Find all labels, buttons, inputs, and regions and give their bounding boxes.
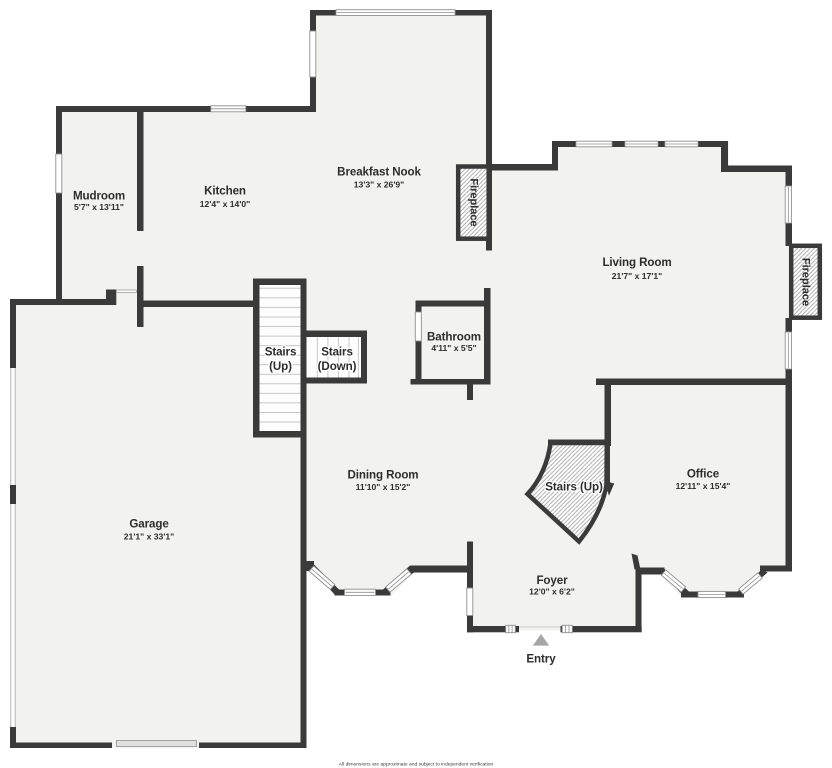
svg-text:12'4" x 14'0": 12'4" x 14'0" (200, 199, 250, 209)
svg-text:Stairs (Up): Stairs (Up) (545, 481, 603, 494)
svg-text:12'11" x 15'4": 12'11" x 15'4" (676, 481, 731, 491)
svg-text:All dimensions are approximate: All dimensions are approximate and subje… (339, 762, 494, 768)
svg-text:Dining Room: Dining Room (347, 469, 418, 482)
svg-text:21'1" x 33'1": 21'1" x 33'1" (124, 532, 174, 542)
svg-text:Entry: Entry (526, 653, 556, 666)
svg-text:4'11" x 5'5": 4'11" x 5'5" (431, 343, 476, 353)
svg-text:Bathroom: Bathroom (427, 331, 481, 344)
svg-text:Fireplace: Fireplace (468, 178, 480, 226)
svg-text:13'3" x 26'9": 13'3" x 26'9" (354, 180, 404, 190)
svg-text:Living Room: Living Room (602, 256, 671, 269)
svg-text:11'10" x 15'2": 11'10" x 15'2" (356, 482, 411, 492)
svg-text:Mudroom: Mudroom (73, 190, 125, 203)
svg-text:Garage: Garage (129, 518, 169, 531)
svg-text:Breakfast Nook: Breakfast Nook (337, 166, 421, 179)
svg-text:(Up): (Up) (269, 360, 292, 373)
svg-text:Office: Office (687, 468, 720, 481)
svg-text:12'0" x 6'2": 12'0" x 6'2" (529, 587, 575, 597)
svg-text:Foyer: Foyer (536, 574, 568, 587)
svg-text:21'7" x 17'1": 21'7" x 17'1" (612, 271, 662, 281)
svg-text:Kitchen: Kitchen (204, 185, 246, 198)
svg-text:Fireplace: Fireplace (800, 258, 812, 306)
svg-text:(Down): (Down) (318, 360, 357, 373)
svg-text:5'7" x 13'11": 5'7" x 13'11" (74, 202, 124, 212)
svg-text:Stairs: Stairs (321, 346, 353, 359)
svg-text:Stairs: Stairs (265, 346, 297, 359)
